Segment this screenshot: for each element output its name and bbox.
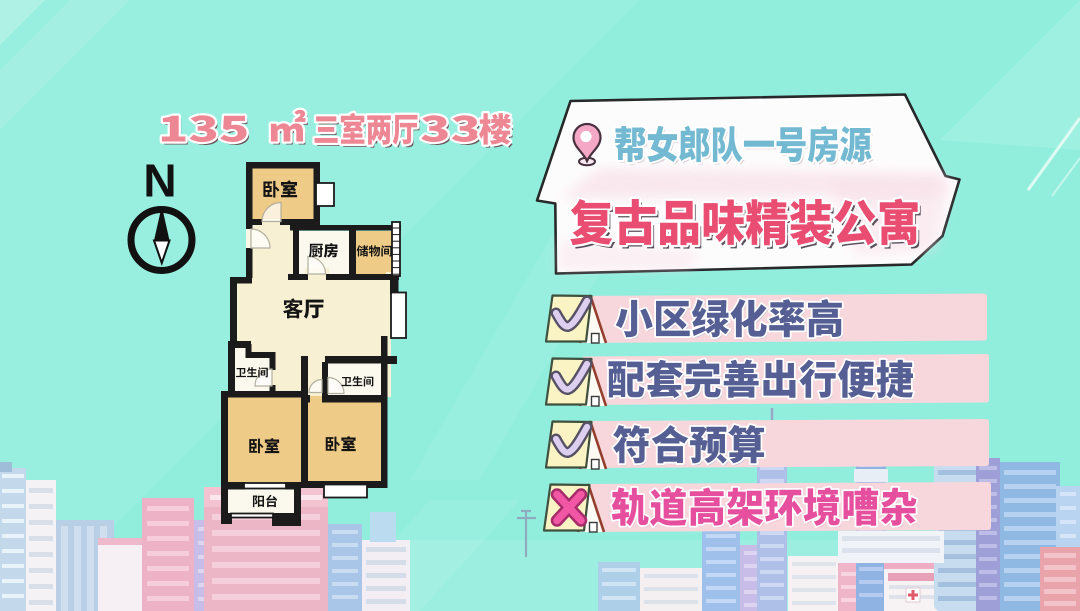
svg-text:N: N (143, 155, 176, 207)
